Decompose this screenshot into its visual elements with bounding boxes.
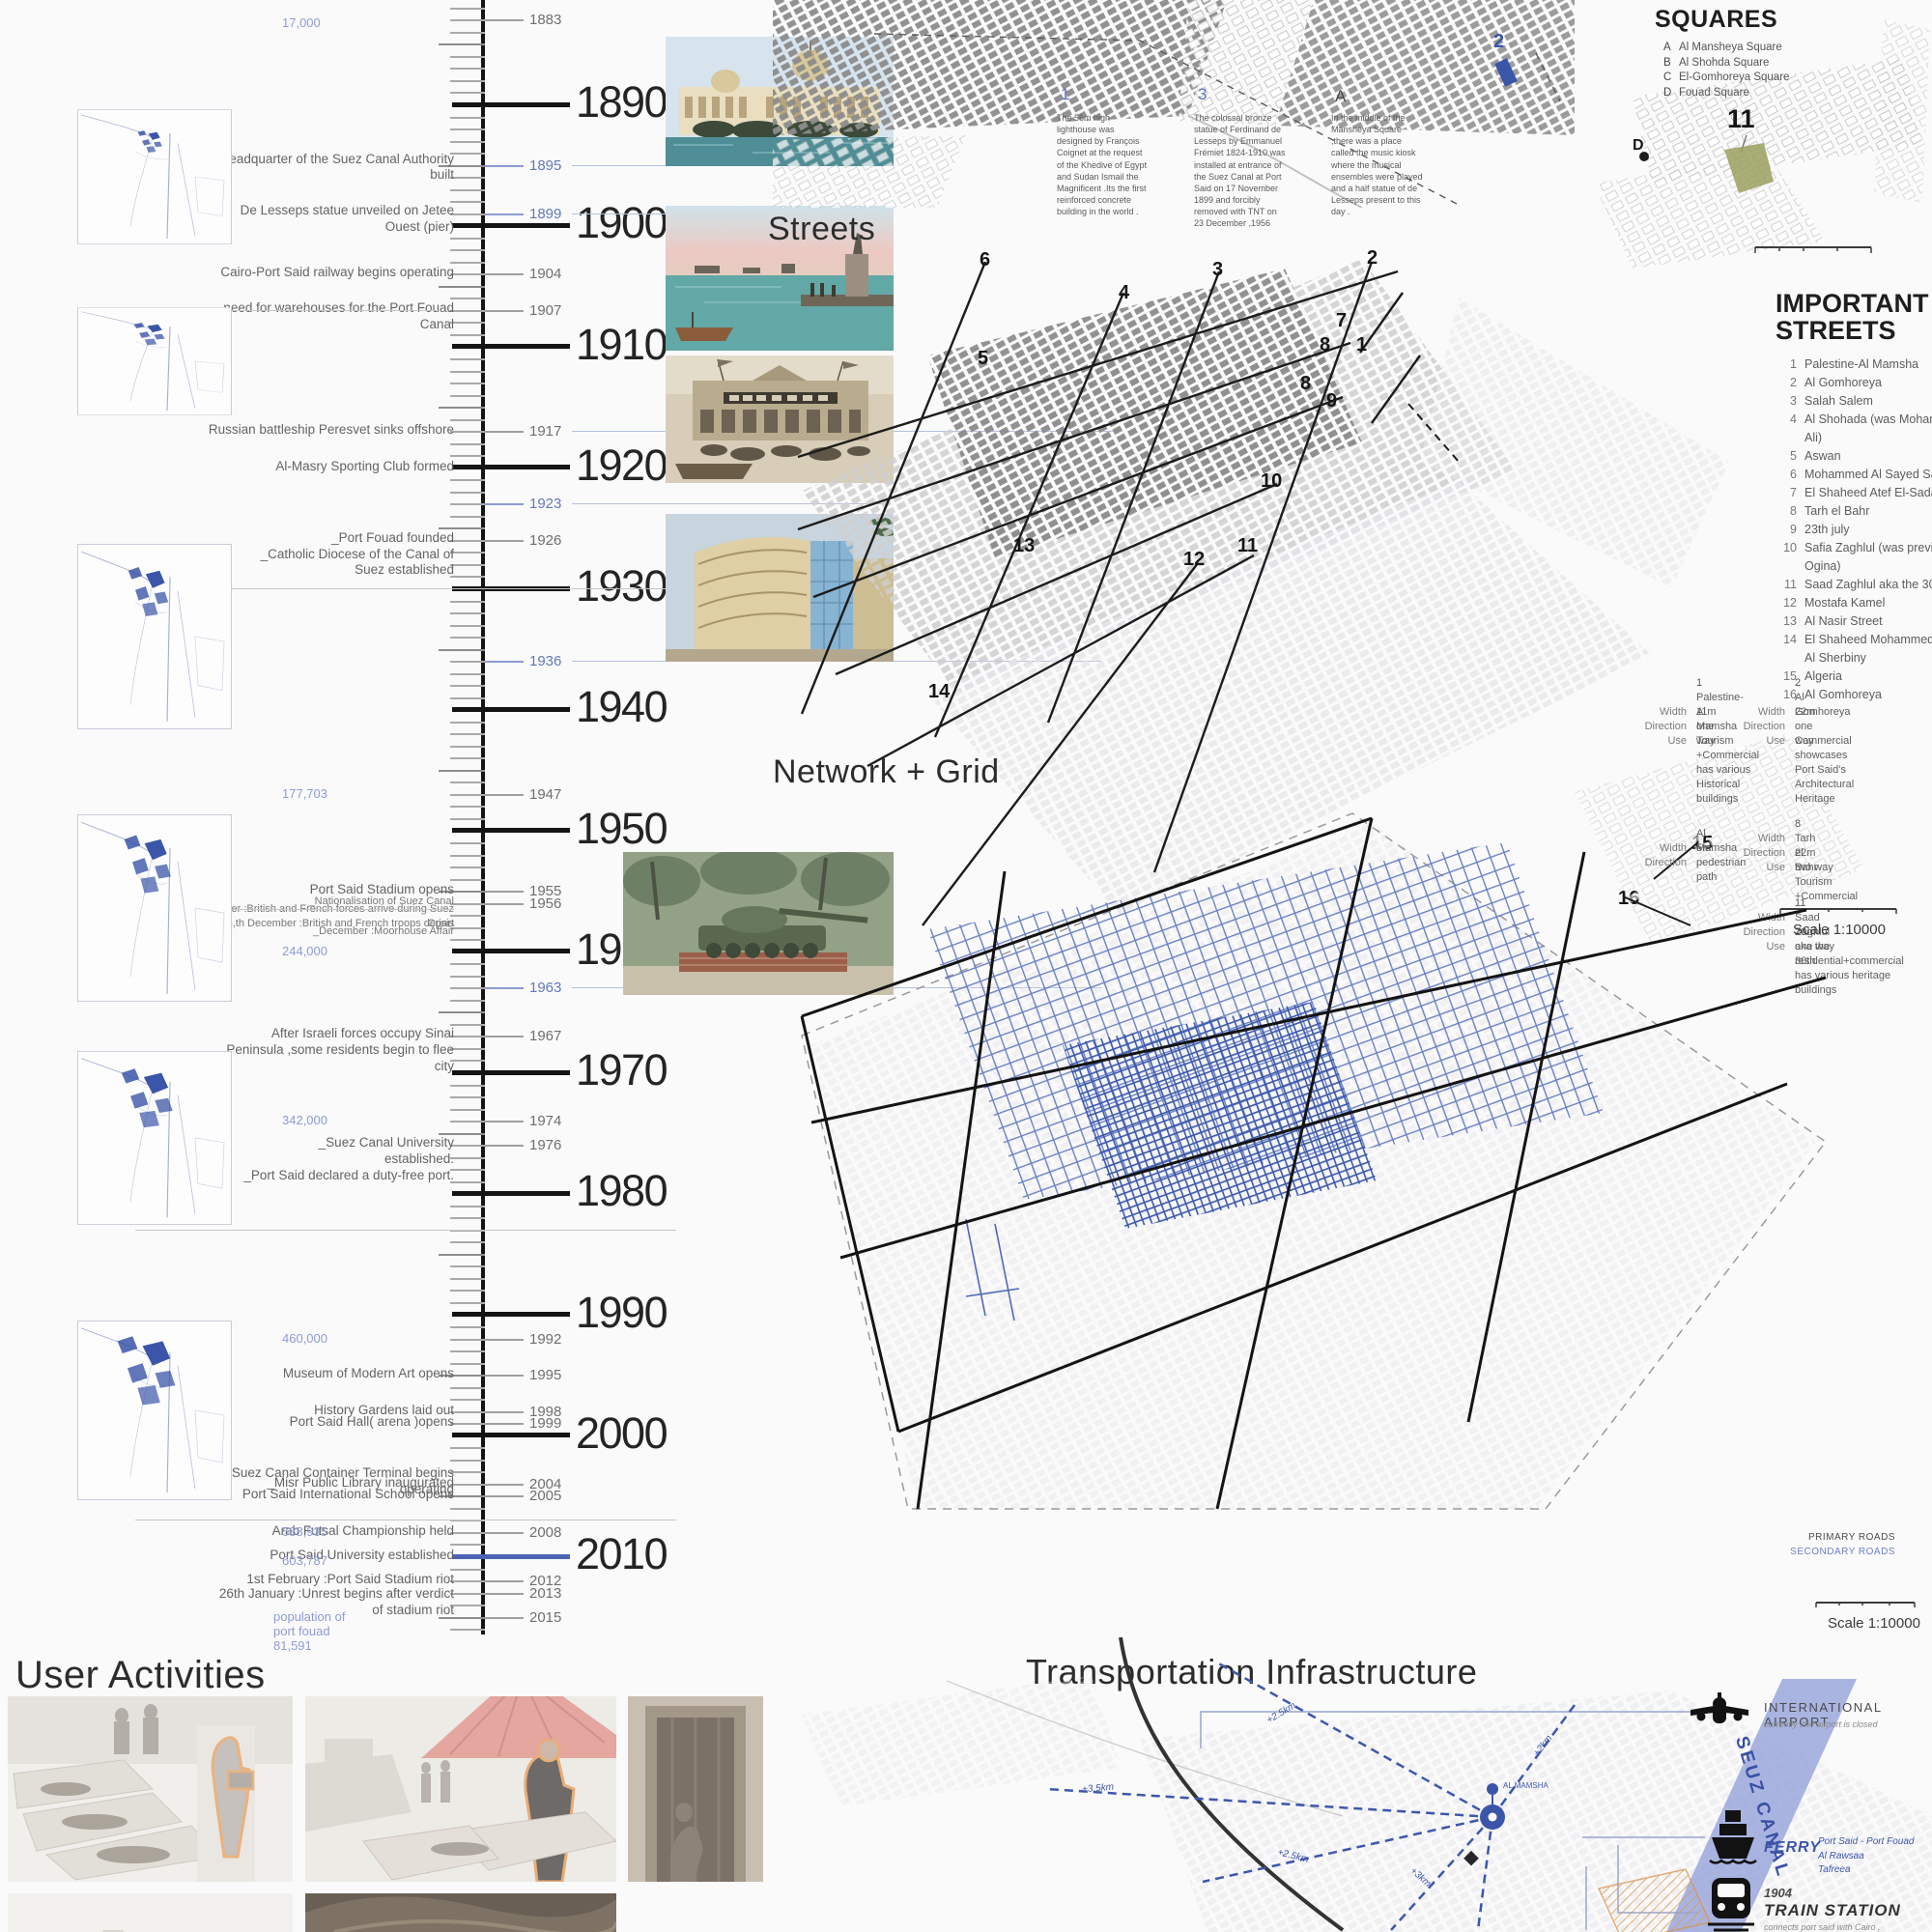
subyear-label: 1976	[529, 1137, 561, 1153]
street-number: 11	[1776, 576, 1797, 594]
subyear-tick	[485, 891, 524, 893]
growth-map-6	[77, 1321, 232, 1500]
squares-legend-item: AAl Mansheya Square	[1663, 41, 1789, 56]
population-figure: 244,000	[282, 944, 327, 958]
year-tick	[450, 262, 485, 264]
population-figure: 342,000	[282, 1113, 327, 1127]
year-tick	[450, 479, 485, 481]
street-list-item: 3Salah Salem	[1776, 392, 1932, 411]
year-tick	[450, 915, 485, 917]
year-tick	[450, 1109, 485, 1111]
year-tick	[450, 1532, 485, 1534]
year-tick	[439, 770, 485, 772]
street-number: 12	[1776, 594, 1797, 612]
street-list-item: 11Saad Zaghlul aka the 30th	[1776, 576, 1932, 594]
user-activities-heading: User Activities	[15, 1654, 266, 1697]
photo-street-market-umbrella	[305, 1696, 616, 1882]
street-name: Mostafa Kamel	[1804, 594, 1932, 612]
year-tick	[450, 1326, 485, 1328]
annotation-1-text: The 56m high lighthouse was designed by …	[1057, 112, 1150, 217]
decade-tick	[452, 1191, 570, 1196]
train-station-title: TRAIN STATION	[1764, 1901, 1901, 1920]
subyear-label: 1926	[529, 532, 561, 549]
year-tick	[439, 1011, 485, 1013]
year-tick	[450, 1302, 485, 1304]
square-name: El-Gomhoreya Square	[1679, 71, 1789, 86]
street-list-item: 14El Shaheed Mohammed Adel Al Sherbiny	[1776, 631, 1932, 668]
detail-label: Direction	[1727, 720, 1785, 734]
year-tick	[450, 927, 485, 929]
year-tick	[450, 576, 485, 578]
population-figure: 588,935	[282, 1524, 327, 1539]
street-map-marker-4: 4	[1119, 282, 1129, 304]
year-tick	[439, 407, 485, 409]
decade-tick	[452, 1554, 570, 1559]
decade-tick	[452, 223, 570, 228]
ferry-routes: Port Said - Port Fouad Al Rawsaa Tafreea	[1818, 1835, 1915, 1878]
year-tick	[450, 987, 485, 989]
street-name: Al Nasir Street	[1804, 612, 1932, 631]
subyear-tick	[485, 1036, 524, 1037]
year-tick	[450, 685, 485, 687]
annotation-1-id: 1	[1061, 85, 1069, 104]
street-number: 6	[1776, 466, 1797, 484]
year-tick	[450, 697, 485, 699]
year-tick	[450, 757, 485, 759]
square-name: Al Mansheya Square	[1679, 41, 1782, 56]
street-list-item: 7El Shaheed Atef El-Sadaat	[1776, 484, 1932, 502]
year-tick	[450, 1278, 485, 1280]
train-note: connects port said with Cairo ,	[1764, 1922, 1881, 1932]
street-name: Mohammed Al Sayed Sarhan	[1804, 466, 1932, 484]
street-name: Al Shohada (was Mohamed Ali)	[1804, 411, 1932, 447]
network-legend: PRIMARY ROADS SECONDARY ROADS	[1750, 1530, 1895, 1559]
year-tick	[450, 92, 485, 94]
detail-label: Use	[1727, 734, 1785, 749]
subyear-tick	[485, 1339, 524, 1341]
subyear-tick	[485, 1484, 524, 1486]
street-number: 9	[1776, 521, 1797, 539]
train-year: 1904	[1764, 1886, 1792, 1900]
street-list-item: 4Al Shohada (was Mohamed Ali)	[1776, 411, 1932, 447]
street-number: 5	[1776, 447, 1797, 466]
detail-number: 1	[1696, 676, 1702, 691]
subyear-label: 1923	[529, 496, 561, 512]
subyear-label: 2015	[529, 1609, 561, 1626]
subyear-tick	[485, 1580, 524, 1582]
timeline-event: Al-Masry Sporting Club formed	[133, 459, 454, 475]
subyear-label: 1995	[529, 1367, 561, 1383]
year-tick	[450, 117, 485, 119]
street-map-marker-12: 12	[1183, 549, 1205, 571]
year-tick	[450, 238, 485, 240]
squares-legend-item: DFouad Square	[1663, 86, 1789, 101]
subyear-tick	[485, 1532, 524, 1534]
street-number: 8	[1776, 502, 1797, 521]
street-name: Aswan	[1804, 447, 1932, 466]
year-tick	[450, 1265, 485, 1267]
year-tick	[450, 661, 485, 663]
subyear-tick	[485, 903, 524, 905]
year-tick	[450, 781, 485, 783]
year-tick	[450, 1387, 485, 1389]
decade-tick	[452, 344, 570, 349]
square-key: D	[1663, 86, 1679, 101]
subyear-label: 1947	[529, 786, 561, 803]
year-tick	[450, 637, 485, 639]
street-name: Saad Zaghlul aka the 30th	[1804, 576, 1932, 594]
decade-tick	[452, 1070, 570, 1075]
year-tick	[450, 722, 485, 724]
photo-fish-market	[8, 1696, 293, 1882]
hub-label: AL MAMSHA	[1503, 1781, 1548, 1790]
subyear-tick	[485, 1375, 524, 1377]
year-tick	[450, 1339, 485, 1341]
year-tick	[450, 1447, 485, 1449]
growth-map-1	[77, 109, 232, 244]
decade-label: 1940	[576, 682, 667, 732]
detail-value: 22m	[1795, 705, 1815, 720]
street-number: 1	[1776, 355, 1797, 374]
decade-label: 1900	[576, 198, 667, 248]
year-tick	[450, 431, 485, 433]
year-tick	[450, 963, 485, 965]
photo-link-rule	[572, 213, 680, 214]
subyear-tick	[485, 431, 524, 433]
year-tick	[450, 1629, 485, 1631]
subyear-label: 1974	[529, 1113, 561, 1129]
year-tick	[450, 564, 485, 566]
subyear-label: 1992	[529, 1331, 561, 1348]
subyear-label: 2008	[529, 1524, 561, 1541]
subyear-label: 1963	[529, 980, 561, 996]
year-tick	[450, 455, 485, 457]
year-tick	[450, 1290, 485, 1292]
subyear-tick	[485, 540, 524, 542]
network-grid-heading: Network + Grid	[773, 753, 1000, 791]
year-tick	[450, 879, 485, 881]
subyear-label: 1904	[529, 266, 561, 282]
year-tick	[450, 1060, 485, 1062]
year-tick	[450, 334, 485, 336]
decade-tick	[452, 102, 570, 107]
subyear-tick	[485, 794, 524, 796]
year-tick	[450, 32, 485, 34]
year-tick	[450, 1048, 485, 1050]
year-tick	[450, 322, 485, 324]
street-name: Palestine-Al Mamsha	[1804, 355, 1932, 374]
subyear-tick	[485, 1617, 524, 1619]
subyear-tick	[485, 1411, 524, 1413]
street-number: 2	[1776, 374, 1797, 392]
year-tick	[450, 601, 485, 603]
square-key: C	[1663, 71, 1679, 86]
street-map-marker-14: 14	[928, 681, 950, 703]
annotation-a-text: In the middle of the Mansheya Square ,th…	[1331, 112, 1424, 217]
population-figure: 177,703	[282, 786, 327, 801]
year-tick	[450, 1096, 485, 1098]
network-scalebar	[1812, 1600, 1918, 1611]
squares-scalebar	[1750, 243, 1876, 257]
street-list-item: 5Aswan	[1776, 447, 1932, 466]
ferry-icon	[1708, 1808, 1758, 1864]
street-number: 13	[1776, 612, 1797, 631]
subyear-tick	[485, 1145, 524, 1147]
subyear-label: 1917	[529, 423, 561, 440]
decade-label: 1890	[576, 77, 667, 128]
year-tick	[450, 419, 485, 421]
year-tick	[450, 492, 485, 494]
important-streets-title: IMPORTANT STREETS	[1776, 290, 1928, 345]
squares-legend-item: CEl-Gomhoreya Square	[1663, 71, 1789, 86]
year-tick	[450, 1169, 485, 1171]
street-map-marker-5: 5	[978, 348, 988, 370]
square-marker-11: 11	[1727, 104, 1755, 134]
street-map-marker-8: 8	[1320, 334, 1330, 356]
decade-label: 2010	[576, 1529, 667, 1579]
growth-map-3	[77, 544, 232, 729]
year-tick	[439, 649, 485, 651]
subyear-tick	[485, 1495, 524, 1497]
subyear-label: 1883	[529, 12, 561, 28]
photo-doorway-craftsman	[628, 1696, 763, 1882]
map-link-rule	[135, 1520, 676, 1520]
street-name: 23th july	[1804, 521, 1932, 539]
street-name: Salah Salem	[1804, 392, 1932, 411]
year-tick	[450, 310, 485, 312]
year-tick	[450, 189, 485, 191]
year-tick	[450, 68, 485, 70]
detail-number: 2	[1795, 676, 1801, 691]
train-icon	[1704, 1876, 1758, 1932]
year-tick	[450, 855, 485, 857]
ferry-title: FERRY	[1764, 1839, 1821, 1857]
year-tick	[450, 842, 485, 844]
street-name: Safia Zaghlul (was previously Ogina)	[1804, 539, 1932, 576]
year-tick	[450, 141, 485, 143]
detail-label: Use	[1629, 734, 1687, 749]
year-tick	[450, 794, 485, 796]
poster-canvas: 1890190019101920193019401950196019701980…	[0, 0, 1932, 1932]
decade-tick	[452, 949, 570, 953]
year-tick	[450, 443, 485, 445]
subyear-label: 2013	[529, 1585, 561, 1602]
street-map-marker-6: 6	[980, 249, 990, 271]
decade-label: 1980	[576, 1166, 667, 1216]
airplane-icon	[1689, 1690, 1750, 1735]
year-tick	[450, 540, 485, 542]
street-number: 14	[1776, 631, 1797, 668]
year-tick	[450, 516, 485, 518]
decade-tick	[452, 1312, 570, 1317]
year-tick	[450, 273, 485, 275]
year-tick	[450, 1350, 485, 1352]
decade-tick	[452, 707, 570, 712]
year-tick	[450, 298, 485, 299]
year-tick	[450, 1508, 485, 1510]
street-map-marker-10: 10	[1261, 470, 1282, 493]
year-tick	[450, 1471, 485, 1473]
year-tick	[450, 1157, 485, 1159]
year-tick	[450, 1000, 485, 1002]
square-name: Fouad Square	[1679, 86, 1749, 101]
important-streets-list: 1Palestine-Al Mamsha2Al Gomhoreya3Salah …	[1776, 355, 1932, 704]
street-list-item: 12Mostafa Kamel	[1776, 594, 1932, 612]
timeline-event: Russian battleship Peresvet sinks offsho…	[133, 422, 454, 439]
street-map-marker-11: 11	[1237, 535, 1258, 557]
port-fouad-population: population of port fouad 81,591	[273, 1609, 345, 1653]
decade-label: 1920	[576, 440, 667, 491]
subyear-label: 1967	[529, 1028, 561, 1044]
year-tick	[450, 201, 485, 203]
year-tick	[450, 1024, 485, 1026]
street-list-item: 8Tarh el Bahr	[1776, 502, 1932, 521]
detail-label: Width	[1629, 705, 1687, 720]
squares-context-map	[773, 0, 1575, 208]
subyear-tick	[485, 661, 524, 663]
street-map-marker-1: 1	[1356, 334, 1367, 356]
decade-label: 1950	[576, 804, 667, 854]
map-link-rule	[135, 1230, 676, 1231]
subyear-label: 1899	[529, 206, 561, 222]
year-tick	[450, 213, 485, 215]
subyear-tick	[485, 1423, 524, 1425]
growth-map-2	[77, 307, 232, 415]
year-tick	[450, 128, 485, 130]
squares-legend: AAl Mansheya SquareBAl Shohda SquareCEl-…	[1663, 41, 1789, 100]
year-tick	[450, 56, 485, 58]
year-tick	[450, 673, 485, 675]
year-tick	[450, 1423, 485, 1425]
street-list-item: 1Palestine-Al Mamsha	[1776, 355, 1932, 374]
year-tick	[450, 903, 485, 905]
subyear-tick	[485, 310, 524, 312]
square-key: B	[1663, 56, 1679, 71]
street-number: 10	[1776, 539, 1797, 576]
subyear-tick	[485, 19, 524, 21]
legend-secondary-roads: SECONDARY ROADS	[1750, 1545, 1895, 1559]
year-tick	[450, 733, 485, 735]
year-tick	[450, 153, 485, 155]
year-tick	[450, 1484, 485, 1486]
street-map-marker-3: 3	[1212, 259, 1223, 281]
subyear-tick	[485, 1593, 524, 1595]
year-tick	[439, 43, 485, 45]
year-tick	[450, 867, 485, 868]
street-map-marker-13: 13	[1013, 535, 1035, 557]
year-tick	[450, 1241, 485, 1243]
street-name: El Shaheed Atef El-Sadaat	[1804, 484, 1932, 502]
square-marker-2: 2	[1493, 31, 1504, 53]
decade-tick	[452, 465, 570, 469]
street-name: Tarh el Bahr	[1804, 502, 1932, 521]
square-key: A	[1663, 41, 1679, 56]
year-tick	[450, 1544, 485, 1546]
decade-label: 1910	[576, 320, 667, 370]
year-tick	[450, 746, 485, 748]
detail-value: 11m	[1696, 705, 1717, 720]
subyear-tick	[485, 503, 524, 505]
street-map-marker-7: 7	[1336, 310, 1347, 332]
decade-label: 1970	[576, 1045, 667, 1095]
year-tick	[450, 612, 485, 614]
year-tick	[450, 1363, 485, 1365]
squares-title: SQUARES	[1655, 6, 1777, 34]
street-list-item: 13Al Nasir Street	[1776, 612, 1932, 631]
street-map-marker-9: 9	[1326, 390, 1337, 412]
street-list-item: 10Safia Zaghlul (was previously Ogina)	[1776, 539, 1932, 576]
subyear-label: 1907	[529, 302, 561, 319]
subyear-tick	[485, 273, 524, 275]
year-tick	[450, 358, 485, 360]
photo-link-rule	[572, 165, 680, 166]
street-number: 4	[1776, 411, 1797, 447]
year-tick	[450, 1460, 485, 1462]
growth-map-5	[77, 1051, 232, 1225]
decade-label: 1930	[576, 561, 667, 611]
photo-city-rooftops	[8, 1893, 293, 1932]
population-figure: 460,000	[282, 1331, 327, 1346]
year-tick	[450, 1217, 485, 1219]
subyear-tick	[485, 165, 524, 167]
year-tick	[450, 1206, 485, 1207]
annotation-a-id: A	[1335, 87, 1346, 106]
photo-covered-market	[305, 1893, 616, 1932]
timeline-event: Cairo-Port Said railway begins operating	[133, 265, 454, 281]
year-tick	[450, 806, 485, 808]
square-marker-d: D	[1633, 137, 1644, 155]
year-tick	[450, 1181, 485, 1183]
street-list-item: 6Mohammed Al Sayed Sarhan	[1776, 466, 1932, 484]
year-tick	[450, 503, 485, 505]
subyear-label: 1956	[529, 895, 561, 912]
year-tick	[450, 383, 485, 384]
year-tick	[450, 1399, 485, 1401]
airport-note: currently ,the airport is closed	[1764, 1719, 1878, 1729]
year-tick	[450, 371, 485, 373]
subyear-label: 1936	[529, 653, 561, 669]
year-tick	[450, 818, 485, 820]
year-tick	[450, 1580, 485, 1582]
year-tick	[450, 395, 485, 397]
subyear-tick	[485, 1121, 524, 1122]
year-tick	[450, 8, 485, 10]
population-figure: 17,000	[282, 15, 321, 30]
decade-tick	[452, 1433, 570, 1437]
annotation-3-text: The colossal bronze statue of Ferdinand …	[1194, 112, 1287, 229]
population-figure: 603,787	[282, 1553, 327, 1568]
detail-label: Width	[1727, 705, 1785, 720]
legend-primary-roads: PRIMARY ROADS	[1750, 1530, 1895, 1545]
year-tick	[450, 976, 485, 978]
street-number: 7	[1776, 484, 1797, 502]
street-map-marker-2: 2	[1367, 247, 1378, 270]
year-tick	[450, 552, 485, 554]
square-name: Al Shohda Square	[1679, 56, 1769, 71]
squares-legend-item: BAl Shohda Square	[1663, 56, 1789, 71]
year-tick	[450, 1605, 485, 1606]
year-tick	[450, 1085, 485, 1087]
year-tick	[450, 177, 485, 179]
subyear-tick	[485, 213, 524, 215]
year-tick	[450, 19, 485, 21]
network-grid-map	[773, 794, 1835, 1534]
decade-label: 2000	[576, 1408, 667, 1459]
decade-tick	[452, 828, 570, 833]
year-tick	[450, 625, 485, 627]
annotation-3-id: 3	[1198, 85, 1207, 104]
subyear-label: 1999	[529, 1415, 561, 1432]
